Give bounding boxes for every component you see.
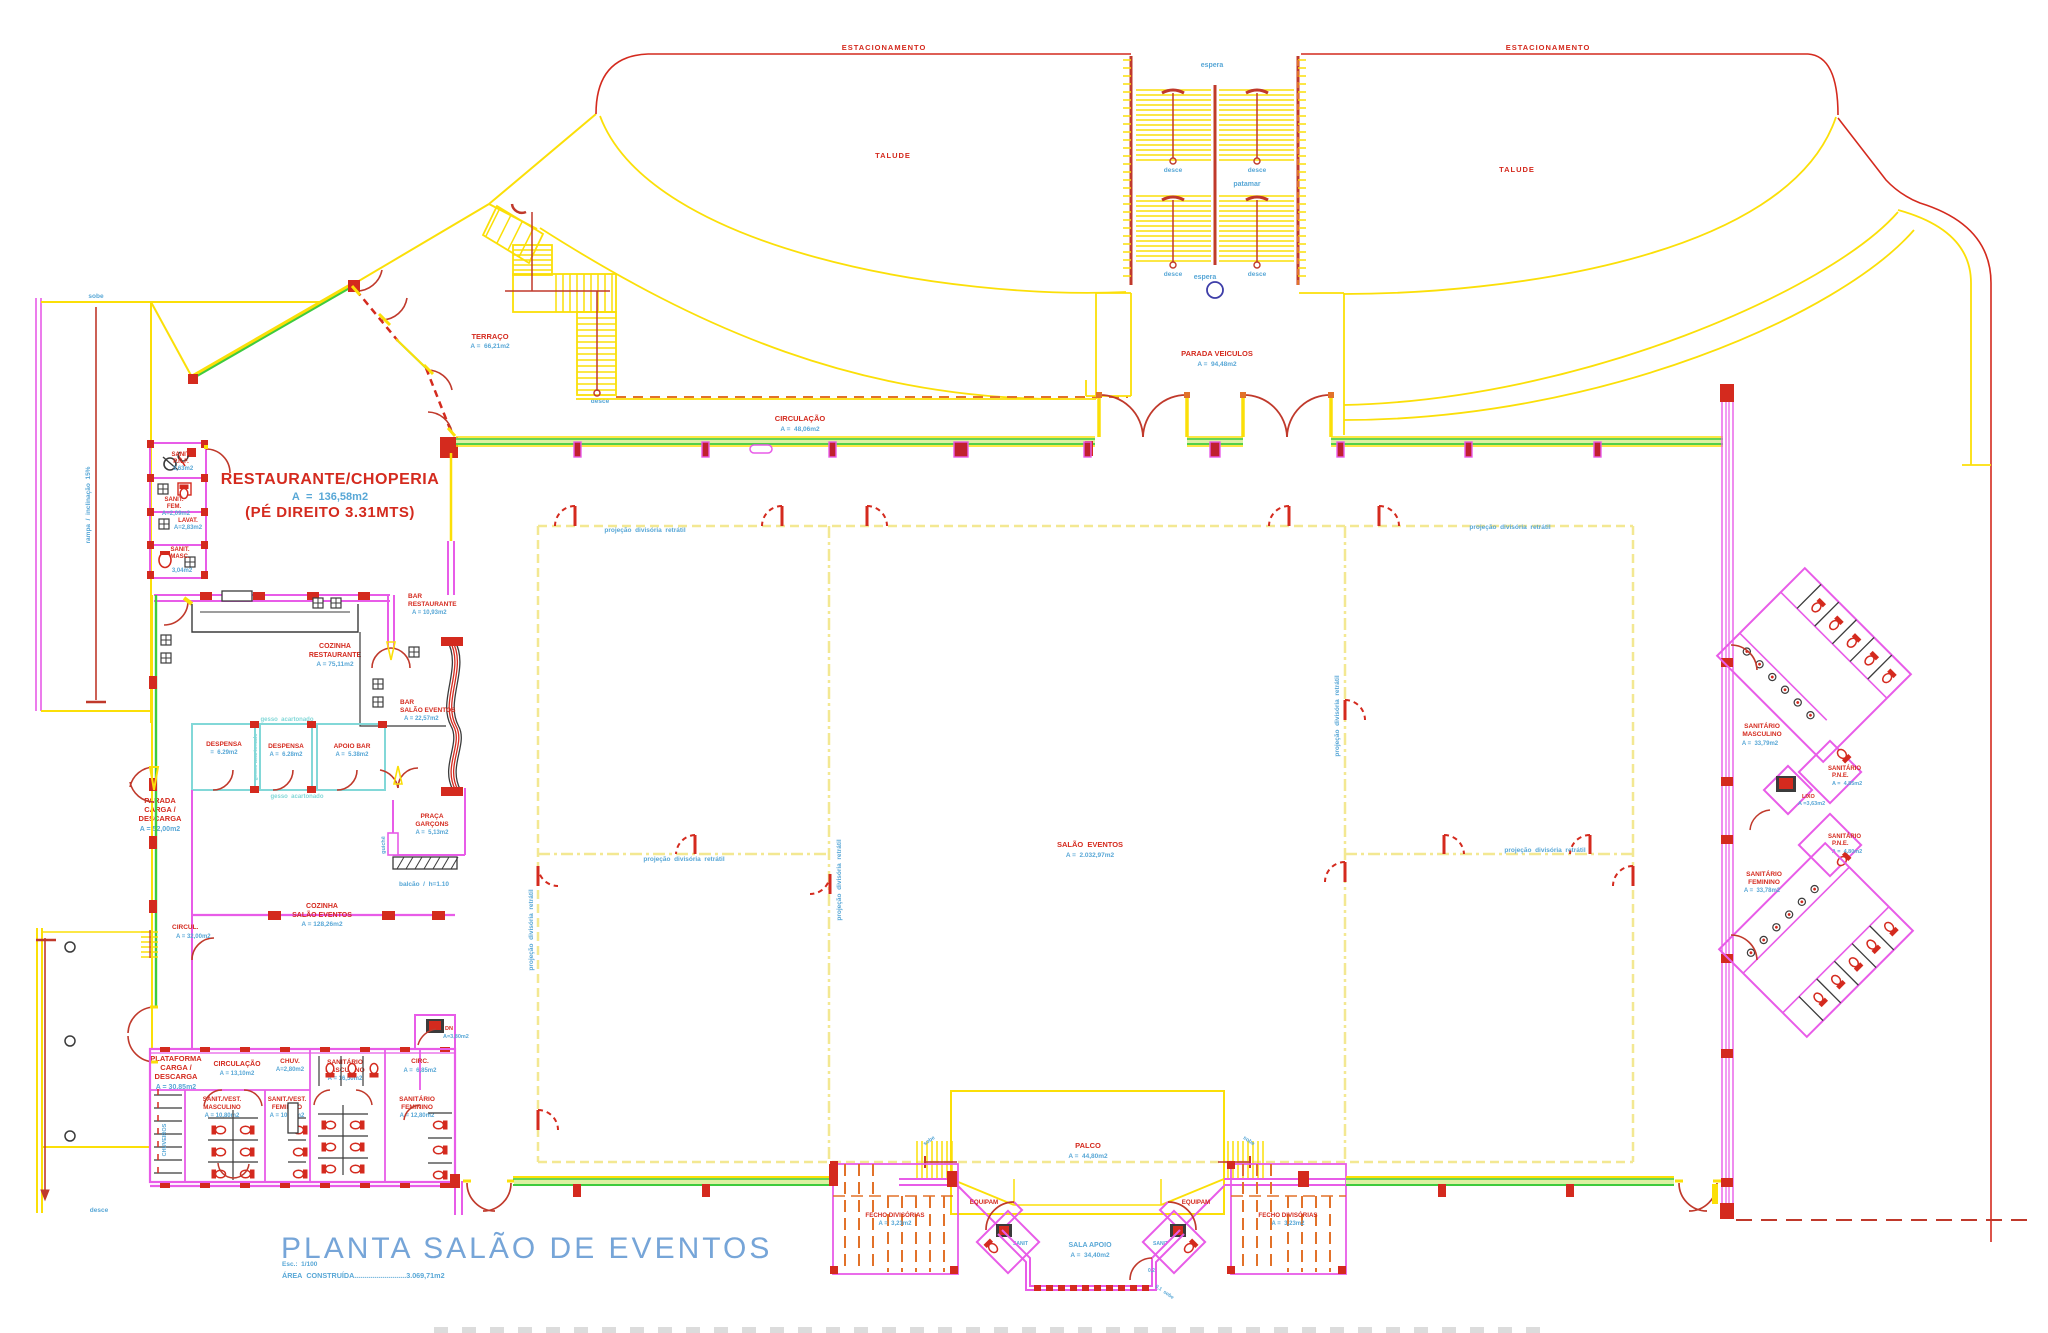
svg-text:A = 94,48m2: A = 94,48m2 [1197, 361, 1237, 368]
svg-text:PLATAFORMA: PLATAFORMA [150, 1054, 202, 1063]
svg-text:DESCARGA: DESCARGA [139, 814, 183, 823]
svg-text:projeção divisória retrátil: projeção divisória retrátil [1469, 524, 1550, 531]
svg-text:A = 32,00m2: A = 32,00m2 [176, 934, 211, 940]
svg-text:A = 2.032,97m2: A = 2.032,97m2 [1066, 852, 1115, 859]
svg-text:DN: DN [445, 1026, 453, 1032]
svg-text:ÁREA CONSTRUÍDA..............: ÁREA CONSTRUÍDA.........................… [282, 1271, 445, 1280]
svg-text:A = 34,40m2: A = 34,40m2 [1070, 1252, 1110, 1259]
svg-text:A = 13,10m2: A = 13,10m2 [220, 1071, 255, 1077]
svg-text:A =3,63m2: A =3,63m2 [1798, 801, 1825, 807]
svg-text:A = 48,06m2: A = 48,06m2 [780, 426, 820, 433]
svg-text:CARGA /: CARGA / [160, 1063, 192, 1072]
svg-text:sobe: sobe [88, 293, 104, 300]
svg-text:A = 33,78m2: A = 33,78m2 [1744, 888, 1781, 894]
svg-text:MASCULINO: MASCULINO [203, 1104, 241, 1111]
svg-text:(PÉ DIREITO 3.31MTS): (PÉ DIREITO 3.31MTS) [245, 504, 415, 521]
svg-text:PARADA VEICULOS: PARADA VEICULOS [1181, 349, 1253, 358]
svg-text:P.N.F.: P.N.F. [173, 459, 189, 465]
svg-text:SANITÁRIO: SANITÁRIO [399, 1094, 435, 1103]
svg-text:A = 4,85m2: A = 4,85m2 [1832, 781, 1862, 787]
svg-text:desce: desce [1164, 271, 1183, 278]
svg-text:A = 22,57m2: A = 22,57m2 [404, 716, 439, 722]
svg-text:BAR: BAR [400, 699, 414, 706]
svg-text:ESTACIONAMENTO: ESTACIONAMENTO [1506, 43, 1591, 52]
svg-text:desce: desce [1164, 167, 1183, 174]
svg-text:MASCULINO: MASCULINO [1742, 731, 1781, 738]
svg-text:EQUIPAM: EQUIPAM [1182, 1199, 1210, 1206]
svg-text:3,63m2: 3,63m2 [173, 466, 194, 472]
svg-text:SANITÁRIO: SANITÁRIO [1746, 869, 1782, 878]
svg-text:APOIO BAR: APOIO BAR [334, 743, 371, 750]
svg-text:ESTACIONAMENTO: ESTACIONAMENTO [842, 43, 927, 52]
svg-text:CIRCUL.: CIRCUL. [172, 924, 199, 931]
svg-text:projeção divisória retrátil: projeção divisória retrátil [836, 839, 843, 920]
svg-text:A = 6,85m2: A = 6,85m2 [404, 1068, 438, 1074]
svg-text:CHUVEIROS: CHUVEIROS [162, 1123, 168, 1156]
svg-text:SALÃO EVENTOS: SALÃO EVENTOS [292, 910, 352, 919]
svg-text:GARÇONS: GARÇONS [415, 821, 449, 828]
svg-text:A = 128,26m2: A = 128,26m2 [301, 921, 343, 928]
svg-text:guichê: guichê [381, 836, 387, 854]
svg-text:FECHO DIVISÓRIAS: FECHO DIVISÓRIAS [865, 1211, 924, 1219]
svg-text:P.N.E.: P.N.E. [1832, 773, 1849, 779]
svg-text:CIRC.: CIRC. [411, 1058, 429, 1065]
svg-text:SALÃO EVENTOS: SALÃO EVENTOS [1057, 840, 1123, 849]
svg-text:CIRCULAÇÃO: CIRCULAÇÃO [213, 1059, 261, 1068]
svg-text:DESCARGA: DESCARGA [155, 1072, 199, 1081]
svg-text:A = 3,23m2: A = 3,23m2 [879, 1221, 913, 1227]
svg-text:PRAÇA: PRAÇA [420, 813, 443, 820]
svg-text:espera: espera [1194, 274, 1217, 281]
svg-text:desce: desce [1248, 271, 1267, 278]
svg-text:A = 6.28m2: A = 6.28m2 [270, 752, 304, 758]
svg-text:BAR: BAR [408, 593, 422, 600]
svg-text:SANIT.: SANIT. [171, 452, 190, 458]
svg-text:A=2,09m2: A=2,09m2 [162, 511, 191, 517]
svg-text:A=3,80m2: A=3,80m2 [443, 1034, 469, 1040]
svg-text:MASC.: MASC. [170, 554, 190, 560]
svg-text:Esc.: 1/100: Esc.: 1/100 [282, 1261, 318, 1268]
svg-text:A = 33,79m2: A = 33,79m2 [1742, 741, 1779, 747]
svg-text:A = 52,00m2: A = 52,00m2 [140, 826, 181, 833]
svg-text:0,1 sobe: 0,1 sobe [1154, 1284, 1175, 1301]
svg-text:TERRAÇO: TERRAÇO [471, 332, 508, 341]
svg-text:desce: desce [90, 1207, 109, 1214]
svg-text:RESTAURANTE: RESTAURANTE [408, 601, 457, 608]
svg-text:projeção divisória retrátil: projeção divisória retrátil [1334, 675, 1341, 756]
svg-text:EQUIPAM: EQUIPAM [970, 1199, 998, 1206]
svg-text:SALA APOIO: SALA APOIO [1068, 1242, 1112, 1249]
svg-text:A = 75,11m2: A = 75,11m2 [316, 661, 354, 668]
svg-text:FECHO DIVISÓRIAS: FECHO DIVISÓRIAS [1258, 1211, 1317, 1219]
svg-text:projeção divisória retrátil: projeção divisória retrátil [528, 889, 535, 970]
svg-text:PARADA: PARADA [144, 796, 176, 805]
svg-text:projeção divisória retrátil: projeção divisória retrátil [1504, 847, 1585, 854]
svg-text:PALCO: PALCO [1075, 1141, 1101, 1150]
svg-text:DESPENSA: DESPENSA [206, 741, 242, 748]
svg-text:A = 10,93m2: A = 10,93m2 [412, 610, 447, 616]
svg-text:gesso acartonado: gesso acartonado [253, 733, 259, 781]
svg-text:gesso acartonado: gesso acartonado [270, 794, 323, 800]
svg-text:projeção divisória retrátil: projeção divisória retrátil [643, 856, 724, 863]
svg-text:gesso acartonado: gesso acartonado [260, 717, 313, 723]
svg-text:RESTAURANTE: RESTAURANTE [309, 652, 362, 659]
svg-text:= 6.29m2: = 6.29m2 [210, 750, 238, 756]
svg-text:SANIT./VEST.: SANIT./VEST. [203, 1096, 242, 1103]
svg-text:rampa / inclinação 15%: rampa / inclinação 15% [85, 466, 92, 543]
svg-text:LAVAT.: LAVAT. [178, 518, 198, 524]
svg-text:PLANTA SALÃO DE EVENTOS: PLANTA SALÃO DE EVENTOS [281, 1231, 772, 1265]
svg-text:A=2,83m2: A=2,83m2 [174, 525, 203, 531]
svg-text:CIRCULAÇÃO: CIRCULAÇÃO [775, 414, 826, 423]
svg-text:A = 5,13m2: A = 5,13m2 [416, 830, 450, 836]
svg-text:P.N.E.: P.N.E. [1832, 841, 1849, 847]
svg-text:SANITÁRIO: SANITÁRIO [1828, 765, 1861, 772]
svg-text:TALUDE: TALUDE [875, 151, 911, 160]
svg-text:DESPENSA: DESPENSA [268, 743, 304, 750]
svg-text:A=2,80m2: A=2,80m2 [276, 1067, 305, 1073]
svg-text:SALÃO EVENTOS: SALÃO EVENTOS [400, 705, 456, 714]
svg-text:SANIT.: SANIT. [164, 497, 183, 503]
svg-text:A = 3,23m2: A = 3,23m2 [1272, 1221, 1306, 1227]
svg-text:COZINHA: COZINHA [306, 903, 338, 910]
svg-text:CARGA /: CARGA / [144, 805, 176, 814]
svg-text:A = 44,80m2: A = 44,80m2 [1068, 1153, 1108, 1160]
svg-text:A = 136,58m2: A = 136,58m2 [292, 491, 368, 503]
svg-text:espera: espera [1201, 62, 1224, 69]
svg-text:patamar: patamar [1233, 181, 1261, 188]
svg-text:3,04m2: 3,04m2 [172, 568, 193, 574]
svg-text:0,2: 0,2 [1148, 1268, 1155, 1274]
svg-text:SANIT.: SANIT. [170, 547, 189, 553]
svg-text:projeção divisória retrátil: projeção divisória retrátil [604, 527, 685, 534]
svg-text:SANITÁRIO: SANITÁRIO [1744, 721, 1780, 730]
svg-text:SANIT./VEST.: SANIT./VEST. [268, 1096, 307, 1103]
svg-text:TALUDE: TALUDE [1499, 165, 1535, 174]
svg-text:FEMININO: FEMININO [1748, 879, 1780, 886]
svg-text:balcão / h=1.10: balcão / h=1.10 [399, 881, 449, 888]
svg-text:SANITÁRIO: SANITÁRIO [1828, 833, 1861, 840]
svg-text:A = 5.38m2: A = 5.38m2 [336, 752, 370, 758]
svg-text:LIXO: LIXO [1802, 794, 1816, 800]
svg-text:CHUV.: CHUV. [280, 1058, 300, 1065]
svg-text:desce: desce [1248, 167, 1267, 174]
svg-text:FEM.: FEM. [167, 504, 182, 510]
svg-text:COZINHA: COZINHA [319, 643, 351, 650]
svg-text:sobe: sobe [922, 1135, 936, 1147]
svg-text:A = 66,21m2: A = 66,21m2 [470, 343, 510, 350]
svg-text:RESTAURANTE/CHOPERIA: RESTAURANTE/CHOPERIA [221, 471, 440, 488]
